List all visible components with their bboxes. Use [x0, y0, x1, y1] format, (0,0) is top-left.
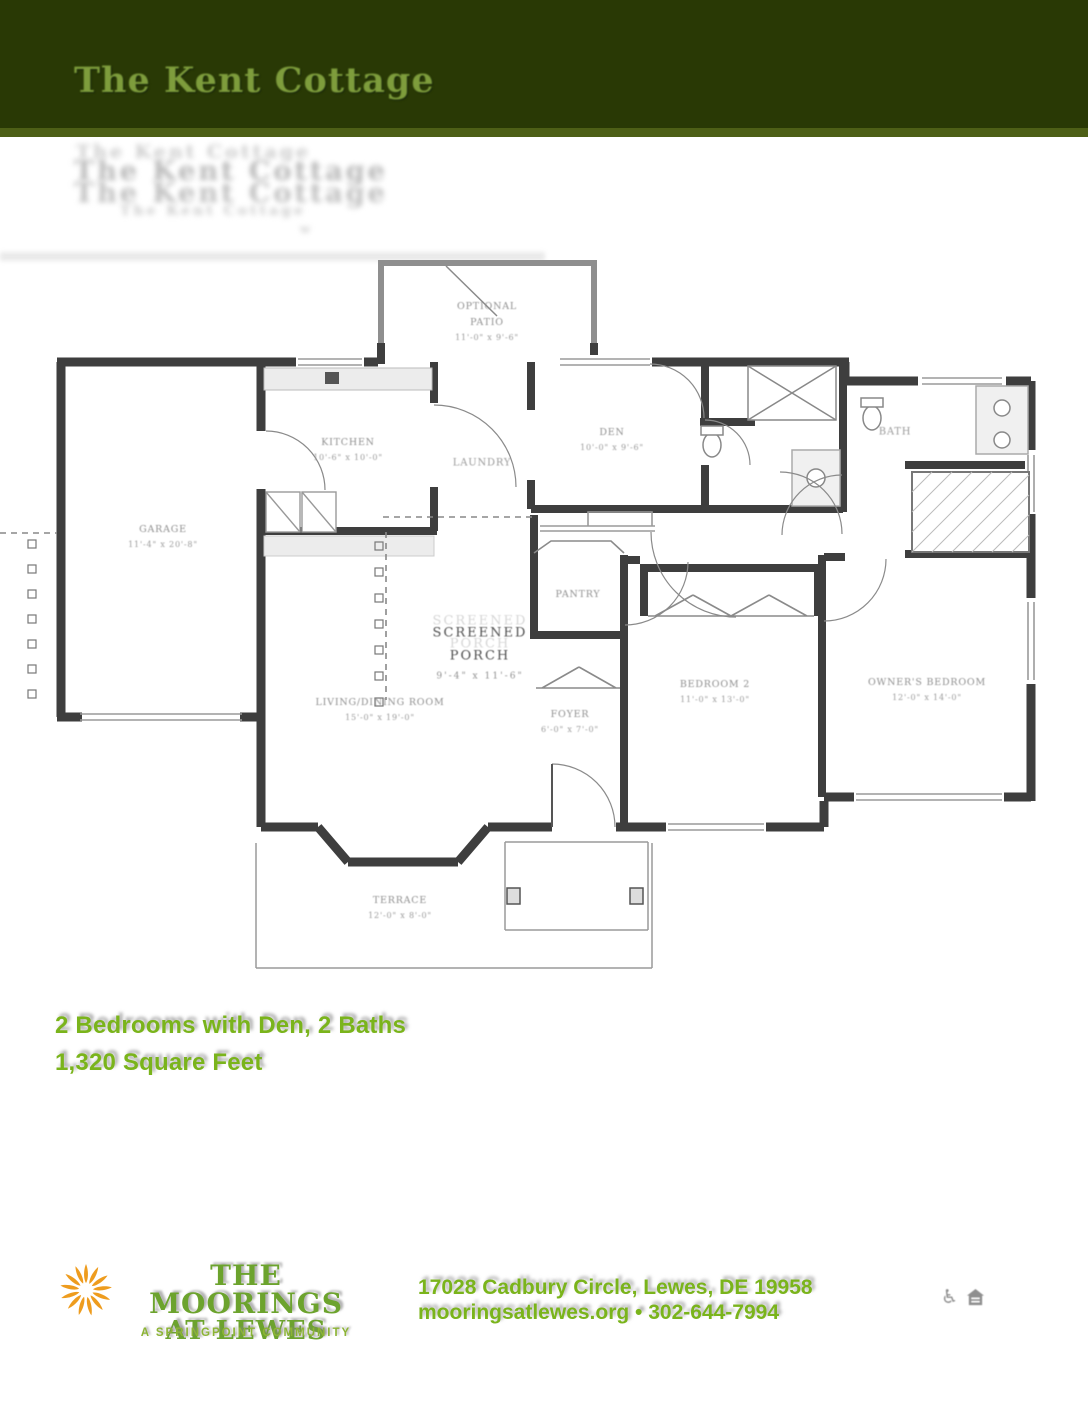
room-label-foyer: FOYER6'-0" x 7'-0" — [541, 707, 599, 737]
ghost-line: w — [300, 222, 313, 236]
room-label-text: BATH — [879, 424, 912, 441]
header-accent-band — [0, 128, 1088, 137]
floorplan-drawing — [0, 250, 1088, 990]
room-label-text: LIVING/DINING ROOM — [316, 695, 445, 711]
room-label-living-dining-room: LIVING/DINING ROOM15'-0" x 19'-0" — [316, 695, 445, 725]
specs-line-1: 2 Bedrooms with Den, 2 Baths — [55, 1012, 406, 1040]
room-label-text: 11'-0" x 9'-6" — [455, 331, 519, 345]
footer-address: 17028 Cadbury Circle, Lewes, DE 19958 — [418, 1276, 813, 1300]
room-label-text: OWNER'S BEDROOM — [868, 675, 986, 691]
page: The Kent Cottage The Kent Cottage The Ke… — [0, 0, 1088, 1408]
room-label-text: 11'-0" x 13'-0" — [680, 693, 750, 707]
room-label-text: BEDROOM 2 — [680, 677, 750, 693]
floorplan: GARAGE11'-4" x 20'-8"KITCHEN10'-6" x 10'… — [0, 250, 1088, 990]
room-label-den: DEN10'-0" x 9'-6" — [580, 425, 644, 455]
sunburst-icon — [58, 1260, 114, 1320]
logo-text-line1: THE MOORINGS — [118, 1262, 374, 1318]
room-label-owners-bedroom: OWNER'S BEDROOM12'-0" x 14'-0" — [868, 675, 986, 705]
room-label-optional-patio: OPTIONALPATIO11'-0" x 9'-6" — [455, 299, 519, 345]
room-label-text: FOYER — [541, 707, 599, 723]
room-label-text: 10'-0" x 9'-6" — [580, 441, 644, 455]
accessibility-icons: ♿ — [941, 1286, 985, 1308]
room-label-text: SCREENED — [433, 621, 528, 644]
room-label-text: PATIO — [455, 315, 519, 331]
room-label-text: 15'-0" x 19'-0" — [316, 711, 445, 725]
specs-line-2: 1,320 Square Feet — [55, 1049, 263, 1077]
room-label-bedroom-2: BEDROOM 211'-0" x 13'-0" — [680, 677, 750, 707]
room-label-text: 11'-4" x 20'-8" — [128, 538, 198, 552]
room-label-text: 9'-4" x 11'-6" — [433, 668, 528, 684]
room-label-text: PANTRY — [556, 587, 601, 603]
room-label-laundry: LAUNDRY — [453, 455, 511, 472]
room-label-text: 12'-0" x 8'-0" — [368, 909, 432, 923]
footer-contact: mooringsatlewes.org • 302-644-7994 — [418, 1301, 779, 1325]
wheelchair-accessible-icon: ♿ — [941, 1286, 958, 1308]
equal-housing-icon — [966, 1288, 985, 1307]
room-label-text: 6'-0" x 7'-0" — [541, 723, 599, 737]
room-label-text: 12'-0" x 14'-0" — [868, 691, 986, 705]
room-label-bath: BATH — [879, 424, 912, 441]
room-label-text: PORCH — [433, 645, 528, 668]
room-label-text: 10'-6" x 10'-0" — [313, 451, 383, 465]
room-label-kitchen: KITCHEN10'-6" x 10'-0" — [313, 435, 383, 465]
springpoint-tagline: A SPRINGPOINT COMMUNITY — [118, 1327, 374, 1339]
room-label-pantry: PANTRY — [556, 587, 601, 603]
room-label-text: TERRACE — [368, 893, 432, 909]
room-label-text: DEN — [580, 425, 644, 441]
room-label-screened-porch: SCREENEDPORCH9'-4" x 11'-6" — [433, 621, 528, 684]
header: The Kent Cottage — [0, 0, 1088, 128]
room-label-garage: GARAGE11'-4" x 20'-8" — [128, 522, 198, 552]
room-label-text: KITCHEN — [313, 435, 383, 451]
ghost-line: The Kent Cottage — [120, 203, 306, 219]
room-label-text: GARAGE — [128, 522, 198, 538]
header-title: The Kent Cottage — [74, 60, 435, 101]
room-label-text: OPTIONAL — [455, 299, 519, 315]
room-label-text: LAUNDRY — [453, 455, 511, 472]
room-label-terrace: TERRACE12'-0" x 8'-0" — [368, 893, 432, 923]
